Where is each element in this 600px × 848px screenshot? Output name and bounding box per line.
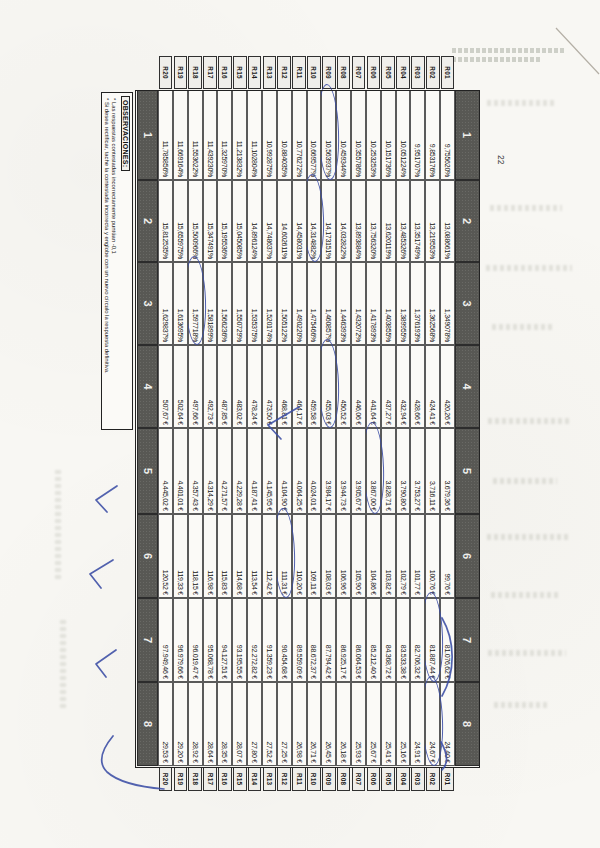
data-cell: 492,73 € <box>203 345 218 428</box>
data-cell: 15,195536% <box>218 180 233 262</box>
data-cell: 95.068,78 € <box>203 598 218 682</box>
data-cell: 464,17 € <box>292 345 307 428</box>
data-cell: 9,755620% <box>440 90 455 180</box>
row-label: R14 <box>248 56 262 89</box>
column-header: 3 <box>137 262 158 345</box>
data-cell: 1,376193% <box>410 262 425 345</box>
data-cell: 446,06 € <box>351 345 366 428</box>
data-cell: 90.454,68 € <box>277 598 292 682</box>
data-cell: 10,051224% <box>396 90 411 180</box>
data-cell: 26,98 € <box>292 682 307 766</box>
data-cell: 25,41 € <box>381 682 396 766</box>
data-cell: 97.949,46 € <box>158 598 173 682</box>
data-cell: 89.559,09 € <box>292 598 307 682</box>
data-cell: 26,71 € <box>307 682 322 766</box>
row-label: R19 <box>174 767 188 791</box>
bleedthrough-print <box>490 205 562 211</box>
data-cell: 25,93 € <box>351 682 366 766</box>
column-header: 2 <box>455 180 480 262</box>
data-cell: 487,85 € <box>218 345 233 428</box>
data-cell: 11,553622% <box>188 90 203 180</box>
data-cell: 459,58 € <box>307 345 322 428</box>
data-cell: 3.716,11 € <box>425 428 440 514</box>
data-cell: 424,41 € <box>425 345 440 428</box>
data-cell: 9,853176% <box>425 90 440 180</box>
data-cell: 10,253253% <box>366 90 381 180</box>
column-header: 5 <box>455 428 480 514</box>
row-label: R05 <box>381 56 395 89</box>
data-cell: 428,66 € <box>410 345 425 428</box>
data-cell: 3.753,27 € <box>410 428 425 514</box>
data-cell: 118,15 € <box>188 514 203 598</box>
row-label: R17 <box>203 56 217 89</box>
table-corner <box>137 55 158 90</box>
data-cell: 27,80 € <box>247 682 262 766</box>
data-cell: 14,602611% <box>277 180 292 262</box>
bleedthrough-print <box>487 100 557 106</box>
row-label: R07 <box>352 56 366 89</box>
data-cell: 101,77 € <box>410 514 425 598</box>
data-cell: 11,213832% <box>232 90 247 180</box>
data-cell: 29,53 € <box>158 682 173 766</box>
data-cell: 14,173151% <box>321 180 336 262</box>
column-header: 7 <box>455 598 480 682</box>
row-label: R12 <box>277 56 291 89</box>
data-cell: 3.905,67 € <box>351 428 366 514</box>
data-cell: 3.828,71 € <box>381 428 396 514</box>
data-cell: 4.024,01 € <box>307 428 322 514</box>
data-cell: 28,07 € <box>232 682 247 766</box>
data-cell: 94.127,51 € <box>218 598 233 682</box>
row-label: R20 <box>159 767 173 791</box>
data-cell: 502,64 € <box>173 345 188 428</box>
data-cell: 27,25 € <box>277 682 292 766</box>
data-cell: 11,102804% <box>247 90 262 180</box>
data-cell: 15,812535% <box>158 180 173 262</box>
data-cell: 29,20 € <box>173 682 188 766</box>
data-cell: 4.357,43 € <box>188 428 203 514</box>
data-cell: 11,669164% <box>173 90 188 180</box>
data-cell: 26,45 € <box>321 682 336 766</box>
column-header: 8 <box>137 682 158 766</box>
data-cell: 13,219553% <box>425 180 440 262</box>
row-label: R08 <box>337 56 351 89</box>
data-cell: 25,67 € <box>366 682 381 766</box>
column-header: 1 <box>137 90 158 180</box>
data-cell: 84.368,72 € <box>381 598 396 682</box>
data-cell: 24,91 € <box>410 682 425 766</box>
bleedthrough-print <box>488 650 566 656</box>
data-cell: 26,18 € <box>336 682 351 766</box>
column-header: 8 <box>455 682 480 766</box>
data-cell: 120,52 € <box>158 514 173 598</box>
row-label: R06 <box>367 767 381 791</box>
bleedthrough-print <box>487 534 571 540</box>
data-cell-circled: 14,314882% <box>307 180 322 262</box>
data-cell: 82.706,32 € <box>410 598 425 682</box>
data-cell: 1,349078% <box>440 262 455 345</box>
data-cell: 27,52 € <box>262 682 277 766</box>
row-label: R05 <box>381 767 395 791</box>
observaciones-line1: * Las respuestas contestadas incorrectam… <box>112 98 118 254</box>
data-cell: 109,11 € <box>307 514 322 598</box>
data-cell: 441,64 € <box>366 345 381 428</box>
data-cell: 88.672,37 € <box>307 598 322 682</box>
data-cell: 507,67 € <box>158 345 173 428</box>
column-header: 6 <box>137 514 158 598</box>
row-label: R07 <box>352 767 366 791</box>
rotated-table-sheet: 22 12345678R019,755620%13,088661%1,34907… <box>90 55 480 795</box>
data-cell-circled: 1,597718% <box>188 262 203 345</box>
row-label: R03 <box>411 767 425 791</box>
table-corner <box>455 55 480 90</box>
row-label: R09 <box>322 56 336 89</box>
row-label: R11 <box>292 56 306 89</box>
column-header: 6 <box>455 514 480 598</box>
data-cell: 81.076,62 € <box>440 598 455 682</box>
data-cell: 4.229,28 € <box>232 428 247 514</box>
data-cell: 1,490220% <box>292 262 307 345</box>
data-cell-circled: 10,563937% <box>321 90 336 180</box>
data-cell: 100,76 € <box>425 514 440 598</box>
data-cell: 13,620119% <box>381 180 396 262</box>
data-cell: 28,35 € <box>218 682 233 766</box>
row-label: R02 <box>426 56 440 89</box>
column-header: 3 <box>455 262 480 345</box>
data-cell: 104,86 € <box>366 514 381 598</box>
data-cell: 3.984,17 € <box>321 428 336 514</box>
data-cell: 15,347491% <box>203 180 218 262</box>
data-cell: 91.359,23 € <box>262 598 277 682</box>
data-cell: 86.064,53 € <box>351 598 366 682</box>
data-cell: 1,460857% <box>321 262 336 345</box>
row-label: R06 <box>367 56 381 89</box>
data-cell: 11,325970% <box>218 90 233 180</box>
data-cell: 1,446393% <box>336 262 351 345</box>
data-cell: 450,52 € <box>336 345 351 428</box>
bleedthrough-print <box>60 620 66 710</box>
data-cell: 1,629837% <box>158 262 173 345</box>
data-cell: 119,33 € <box>173 514 188 598</box>
row-label: R16 <box>218 767 232 791</box>
row-label: R18 <box>188 56 202 89</box>
data-cell: 1,566236% <box>218 262 233 345</box>
page-number: 22 <box>496 155 506 164</box>
data-cell: 10,776272% <box>292 90 307 180</box>
data-cell: 4.271,57 € <box>218 428 233 514</box>
data-cell: 1,389955% <box>396 262 411 345</box>
answer-table: 12345678R019,755620%13,088661%1,349078%4… <box>137 55 480 792</box>
data-cell: 85.212,40 € <box>366 598 381 682</box>
data-cell: 106,96 € <box>336 514 351 598</box>
data-cell: 1,535375% <box>247 262 262 345</box>
data-cell: 1,475466% <box>307 262 322 345</box>
data-cell: 25,16 € <box>396 682 411 766</box>
data-cell: 11,439230% <box>203 90 218 180</box>
column-header: 7 <box>137 598 158 682</box>
data-cell: 86.925,17 € <box>336 598 351 682</box>
data-cell: 105,90 € <box>351 514 366 598</box>
data-cell: 92.272,82 € <box>247 598 262 682</box>
bleedthrough-print <box>494 702 549 708</box>
data-cell: 10,459344% <box>336 90 351 180</box>
data-cell: 112,42 € <box>262 514 277 598</box>
data-cell: 420,26 € <box>440 345 455 428</box>
data-cell: 87.794,42 € <box>321 598 336 682</box>
column-header: 2 <box>137 180 158 262</box>
row-label: R19 <box>174 56 188 89</box>
row-label: R02 <box>426 767 440 791</box>
row-label: R15 <box>233 56 247 89</box>
data-cell: 99,76 € <box>440 514 455 598</box>
table-corner <box>137 766 158 792</box>
data-cell: 497,66 € <box>188 345 203 428</box>
bleedthrough-print <box>486 265 572 271</box>
row-label: R16 <box>218 56 232 89</box>
data-cell: 4.401,01 € <box>173 428 188 514</box>
data-cell-circled: 455,03 € <box>321 345 336 428</box>
row-label: R01 <box>441 767 455 791</box>
data-cell: 28,92 € <box>188 682 203 766</box>
data-cell: 1,505122% <box>277 262 292 345</box>
data-cell: 13,088661% <box>440 180 455 262</box>
data-cell: 115,83 € <box>218 514 233 598</box>
data-cell: 116,98 € <box>203 514 218 598</box>
bleedthrough-print <box>55 470 61 580</box>
data-cell: 1,613695% <box>173 262 188 345</box>
data-cell-circled: 81.887,44 € <box>425 598 440 682</box>
row-label: R03 <box>411 56 425 89</box>
column-header: 4 <box>137 345 158 428</box>
data-cell: 468,81 € <box>277 345 292 428</box>
data-cell: 4.145,95 € <box>262 428 277 514</box>
data-cell: 103,82 € <box>381 514 396 598</box>
data-cell: 9,951707% <box>410 90 425 180</box>
row-label: R08 <box>337 767 351 791</box>
bleedthrough-print <box>493 478 557 484</box>
data-cell: 102,79 € <box>396 514 411 598</box>
data-cell: 4.104,90 € <box>277 428 292 514</box>
observaciones-title: OBSERVACIONES: <box>121 96 130 171</box>
data-cell: 24,40 € <box>440 682 455 766</box>
row-label: R14 <box>248 767 262 791</box>
column-header: 4 <box>455 345 480 428</box>
column-header: 1 <box>455 90 480 180</box>
row-label: R13 <box>263 56 277 89</box>
row-label: R17 <box>203 767 217 791</box>
data-cell-circled: 24,67 € <box>425 682 440 766</box>
table-corner <box>455 766 480 792</box>
data-cell: 10,992875% <box>262 90 277 180</box>
row-label: R18 <box>188 767 202 791</box>
data-cell: 96.019,47 € <box>188 598 203 682</box>
data-cell: 110,20 € <box>292 514 307 598</box>
row-label: R10 <box>307 56 321 89</box>
data-cell: 83.533,38 € <box>396 598 411 682</box>
data-cell: 15,045085% <box>232 180 247 262</box>
data-cell: 1,520174% <box>262 262 277 345</box>
data-cell: 14,458031% <box>292 180 307 262</box>
data-cell: 4.187,41 € <box>247 428 262 514</box>
row-label: R13 <box>263 767 277 791</box>
data-cell: 1,403855% <box>381 262 396 345</box>
data-cell: 14,896124% <box>247 180 262 262</box>
observaciones-line2: * Si desea rectificar, tache la contesta… <box>104 98 110 374</box>
row-label: R01 <box>441 56 455 89</box>
data-cell: 4.064,25 € <box>292 428 307 514</box>
data-cell: 1,362568% <box>425 262 440 345</box>
data-cell: 3.790,80 € <box>396 428 411 514</box>
data-cell: 473,50 € <box>262 345 277 428</box>
data-cell: 13,485326% <box>396 180 411 262</box>
row-label: R15 <box>233 767 247 791</box>
data-cell: 15,500966% <box>188 180 203 262</box>
data-cell: 108,03 € <box>321 514 336 598</box>
row-label: R04 <box>396 767 410 791</box>
data-cell: 4.314,29 € <box>203 428 218 514</box>
row-label: R11 <box>292 767 306 791</box>
data-cell: 3.944,73 € <box>336 428 351 514</box>
data-cell-circled: 3.867,00 € <box>366 428 381 514</box>
data-cell: 1,417893% <box>366 262 381 345</box>
data-cell: 437,27 € <box>381 345 396 428</box>
data-cell: 478,24 € <box>247 345 262 428</box>
data-cell-circled: 111,31 € <box>277 514 292 598</box>
data-cell: 14,032822% <box>336 180 351 262</box>
bleedthrough-print <box>492 324 552 330</box>
data-cell: 10,669577% <box>307 90 322 180</box>
bleedthrough-print <box>491 592 559 598</box>
data-cell: 10,355786% <box>351 90 366 180</box>
data-cell: 13,351749% <box>410 180 425 262</box>
data-cell: 28,64 € <box>203 682 218 766</box>
column-header: 5 <box>137 428 158 514</box>
data-cell: 114,68 € <box>232 514 247 598</box>
row-label: R10 <box>307 767 321 791</box>
data-cell: 432,94 € <box>396 345 411 428</box>
observaciones-box: OBSERVACIONES: * Las respuestas contesta… <box>101 92 133 430</box>
data-cell: 10,151736% <box>381 90 396 180</box>
data-cell: 93.195,55 € <box>232 598 247 682</box>
data-cell: 1,432072% <box>351 262 366 345</box>
data-cell: 15,655975% <box>173 180 188 262</box>
data-cell: 4.445,02 € <box>158 428 173 514</box>
data-cell: 113,54 € <box>247 514 262 598</box>
data-cell: 3.679,36 € <box>440 428 455 514</box>
row-label: R12 <box>277 767 291 791</box>
row-label: R20 <box>159 56 173 89</box>
data-cell: 13,893884% <box>351 180 366 262</box>
data-cell: 13,756320% <box>366 180 381 262</box>
data-cell: 1,581899% <box>203 262 218 345</box>
data-cell: 483,02 € <box>232 345 247 428</box>
data-cell: 14,748637% <box>262 180 277 262</box>
bleedthrough-print <box>488 418 570 424</box>
data-cell: 96.979,66 € <box>173 598 188 682</box>
row-label: R09 <box>322 767 336 791</box>
row-label: R04 <box>396 56 410 89</box>
data-cell: 10,884035% <box>277 90 292 180</box>
data-cell: 1,550729% <box>232 262 247 345</box>
data-cell: 11,785856% <box>158 90 173 180</box>
